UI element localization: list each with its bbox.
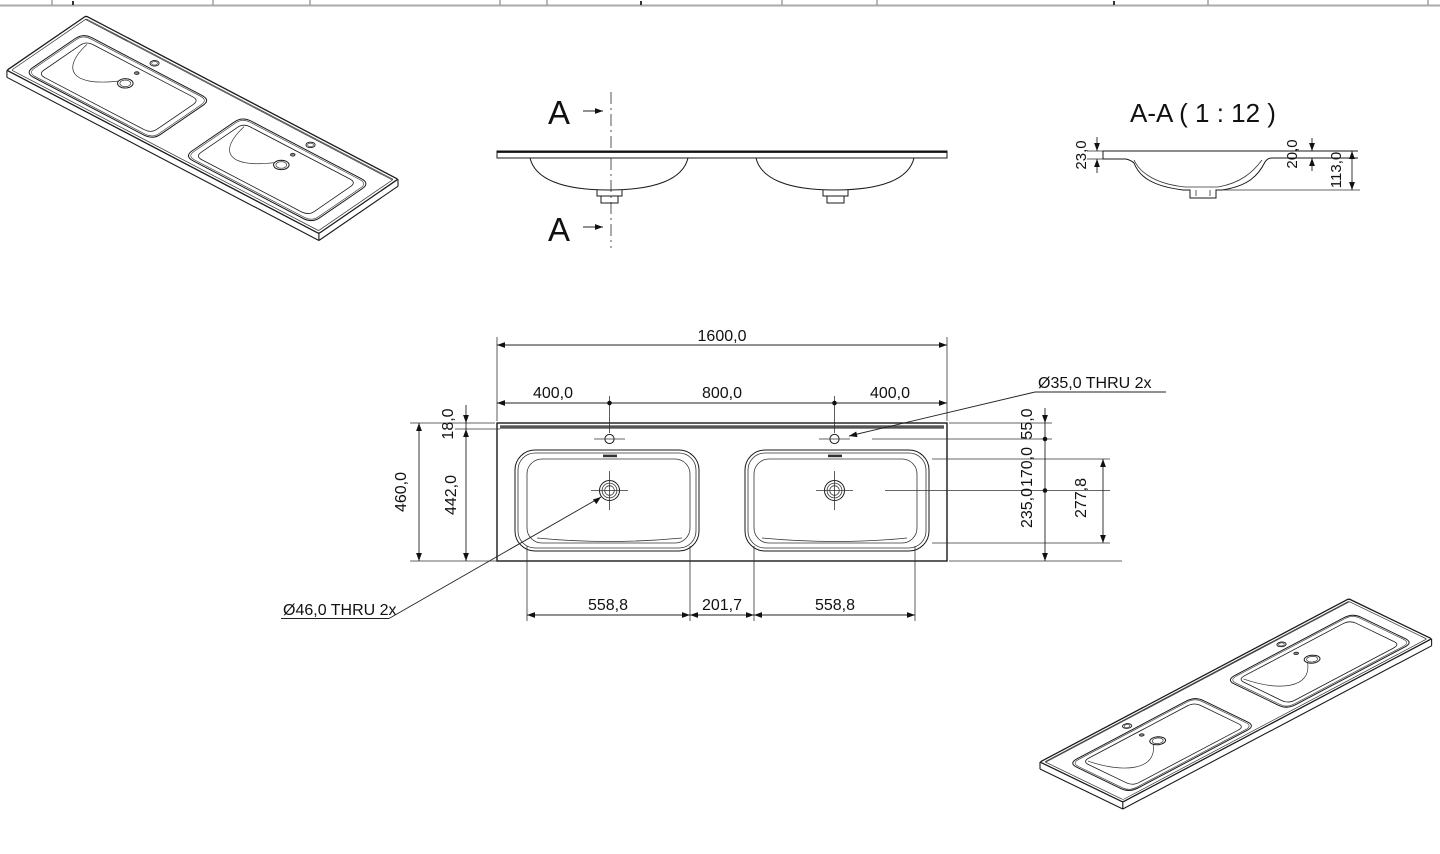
overflow-slot [828, 455, 842, 458]
dim-bowl-left: 558,8 [588, 597, 628, 614]
dim-faucet-span: 800,0 [702, 385, 742, 402]
dim-overall-width: 1600,0 [698, 328, 747, 345]
dim-faucet-left: 400,0 [533, 385, 573, 402]
section-view: A-A ( 1 : 12 ) 23,0 20,0 113,0 [1073, 98, 1360, 198]
drawing-canvas: A A A-A ( 1 : 12 ) 23,0 20,0 [0, 0, 1440, 854]
dim-drain-back: 235,0 [1019, 488, 1036, 528]
overflow-slot [603, 455, 617, 458]
section-cut-label-bottom: A [548, 211, 570, 248]
dim-depth-inner: 442,0 [443, 475, 460, 515]
dim-section-deck: 20,0 [1284, 139, 1301, 168]
dim-section-lip: 23,0 [1073, 140, 1090, 169]
dim-edge: 18,0 [440, 408, 457, 439]
dim-depth: 460,0 [393, 472, 410, 512]
dim-bowl-depth: 277,8 [1073, 478, 1090, 518]
front-edge-band [500, 425, 944, 428]
section-cut-label-top: A [548, 94, 570, 131]
dim-bowl-gap: 201,7 [702, 597, 742, 614]
isometric-view-bottom-right [1040, 599, 1432, 809]
dim-faucet-drain: 170,0 [1019, 447, 1036, 487]
plan-view: 1600,0 400,0 800,0 400,0 18,0 460,0 442,… [281, 328, 1166, 621]
section-title: A-A ( 1 : 12 ) [1130, 98, 1276, 128]
dim-bowl-right: 558,8 [815, 597, 855, 614]
title-block-edge [0, 0, 1440, 6]
dim-faucet-front: 55,0 [1019, 408, 1036, 439]
dim-faucet-right: 400,0 [870, 385, 910, 402]
callout-drain-text: Ø46,0 THRU 2x [283, 602, 397, 619]
cad-drawing-page: { "section": { "title": "A-A ( 1 : 12 )"… [0, 0, 1440, 854]
elevation-view: A A [497, 92, 947, 248]
callout-faucet-text: Ø35,0 THRU 2x [1038, 375, 1152, 392]
dim-section-height: 113,0 [1328, 152, 1345, 188]
isometric-view-top-left [7, 16, 398, 240]
